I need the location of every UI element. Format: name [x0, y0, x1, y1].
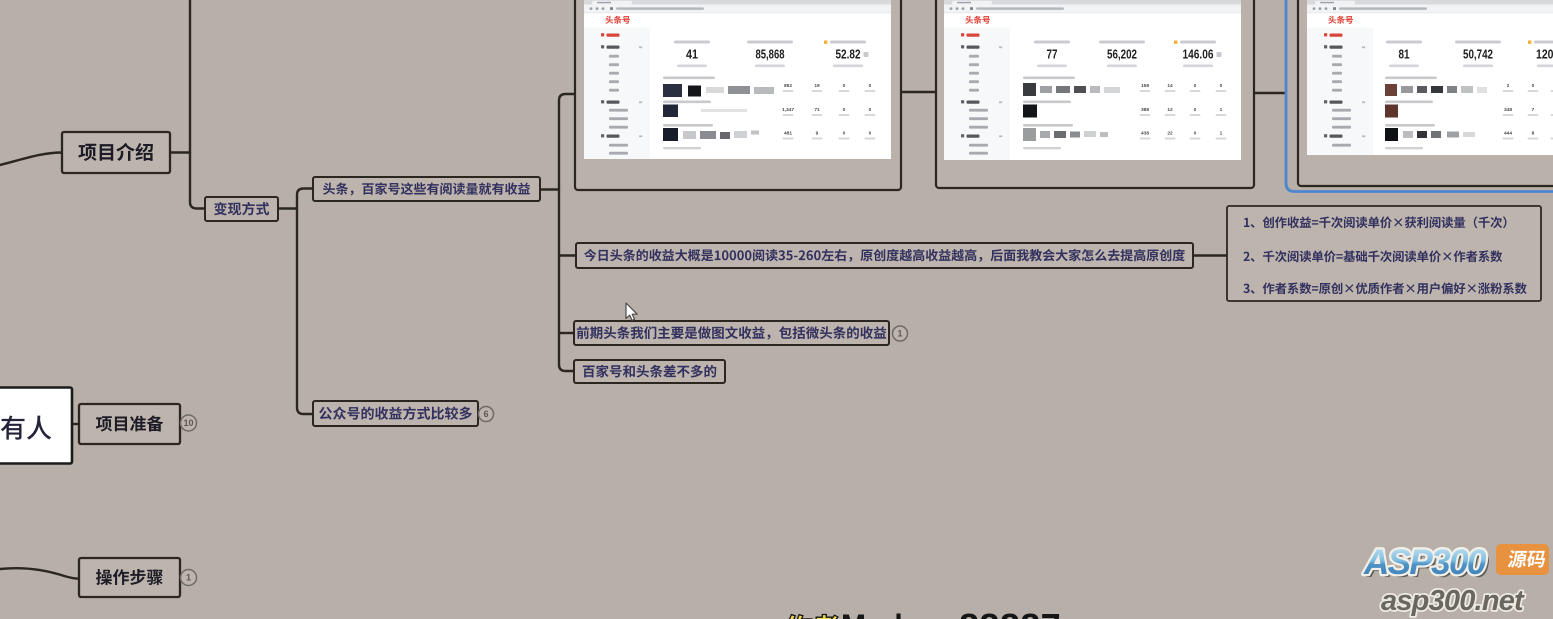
svg-text:0: 0 — [869, 83, 872, 89]
svg-text:120.06: 120.06 — [1536, 47, 1553, 62]
svg-text:14: 14 — [1167, 83, 1173, 89]
svg-text:438: 438 — [1141, 131, 1149, 137]
svg-text:0: 0 — [1194, 83, 1197, 89]
svg-text:52.82: 52.82 — [836, 47, 861, 62]
svg-text:444: 444 — [1504, 131, 1512, 137]
svg-text:2: 2 — [1507, 83, 1510, 89]
svg-text:0: 0 — [843, 131, 846, 137]
svg-text:0: 0 — [1194, 131, 1197, 137]
svg-text:12: 12 — [1167, 107, 1173, 113]
svg-text:ASP300: ASP300 — [1363, 543, 1487, 582]
svg-text:1,347: 1,347 — [782, 107, 794, 113]
svg-text:Mark: Mark — [841, 609, 911, 619]
svg-text:0: 0 — [869, 107, 872, 113]
svg-text:1: 1 — [897, 329, 902, 339]
svg-text:1: 1 — [1220, 131, 1223, 137]
svg-text:1: 1 — [186, 573, 191, 583]
svg-text:0: 0 — [843, 107, 846, 113]
svg-text:asp300.net: asp300.net — [1381, 585, 1525, 617]
svg-text:77: 77 — [1047, 47, 1058, 62]
svg-text:0: 0 — [1220, 83, 1223, 89]
svg-text:388: 388 — [1141, 107, 1149, 113]
svg-text:10: 10 — [183, 418, 193, 428]
svg-text:50,742: 50,742 — [1463, 47, 1493, 62]
svg-text:9: 9 — [816, 131, 819, 137]
svg-text:158: 158 — [1141, 83, 1149, 89]
svg-text:146.06: 146.06 — [1183, 47, 1214, 62]
svg-text:19: 19 — [814, 83, 820, 89]
svg-text:0: 0 — [1194, 107, 1197, 113]
svg-text:6: 6 — [483, 409, 488, 419]
svg-text:81: 81 — [1399, 47, 1410, 62]
svg-text:71: 71 — [814, 107, 820, 113]
svg-text:7: 7 — [1532, 107, 1535, 113]
svg-text:88887: 88887 — [959, 606, 1061, 619]
svg-text:481: 481 — [784, 131, 792, 137]
svg-text:8: 8 — [1532, 131, 1535, 137]
svg-text:0: 0 — [869, 131, 872, 137]
svg-text:0: 0 — [843, 83, 846, 89]
svg-text:56,202: 56,202 — [1107, 47, 1137, 62]
svg-text:22: 22 — [1167, 131, 1173, 137]
svg-text:41: 41 — [686, 47, 698, 62]
svg-text:85,868: 85,868 — [756, 47, 785, 62]
svg-text:348: 348 — [1504, 107, 1512, 113]
svg-text:1: 1 — [1220, 107, 1223, 113]
svg-text:0: 0 — [1532, 83, 1535, 89]
svg-text:892: 892 — [784, 83, 792, 89]
